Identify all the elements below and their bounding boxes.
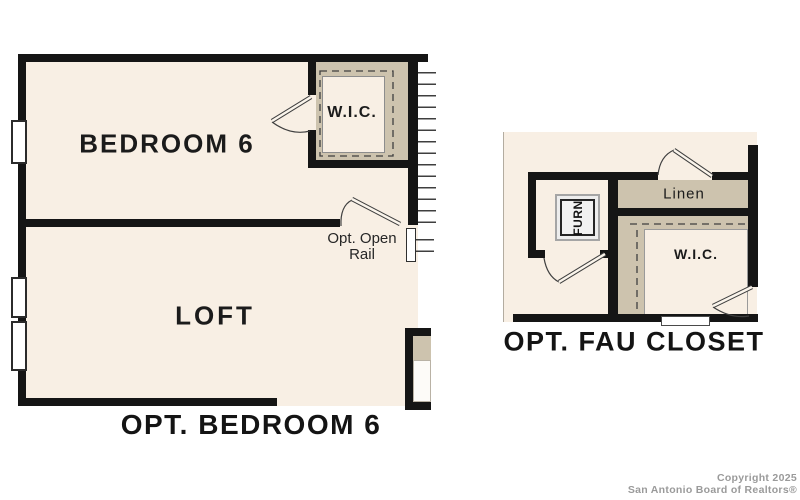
door-swing-icon [341,199,400,226]
door-swing-icon [713,287,752,317]
door-swing-icon [544,254,605,282]
copyright-watermark: Copyright 2025 San Antonio Board of Real… [628,473,797,496]
copyright-line-1: Copyright 2025 [628,473,797,485]
copyright-line-2: San Antonio Board of Realtors® [628,485,797,497]
linework-layer [0,0,800,500]
door-swing-icon [658,150,712,176]
door-swing-icon [272,97,311,132]
closet-rod-dashed-line [320,71,393,156]
floor-plan-page: BEDROOM 6 W.I.C. LOFT Opt. Open Rail OPT… [0,0,800,500]
